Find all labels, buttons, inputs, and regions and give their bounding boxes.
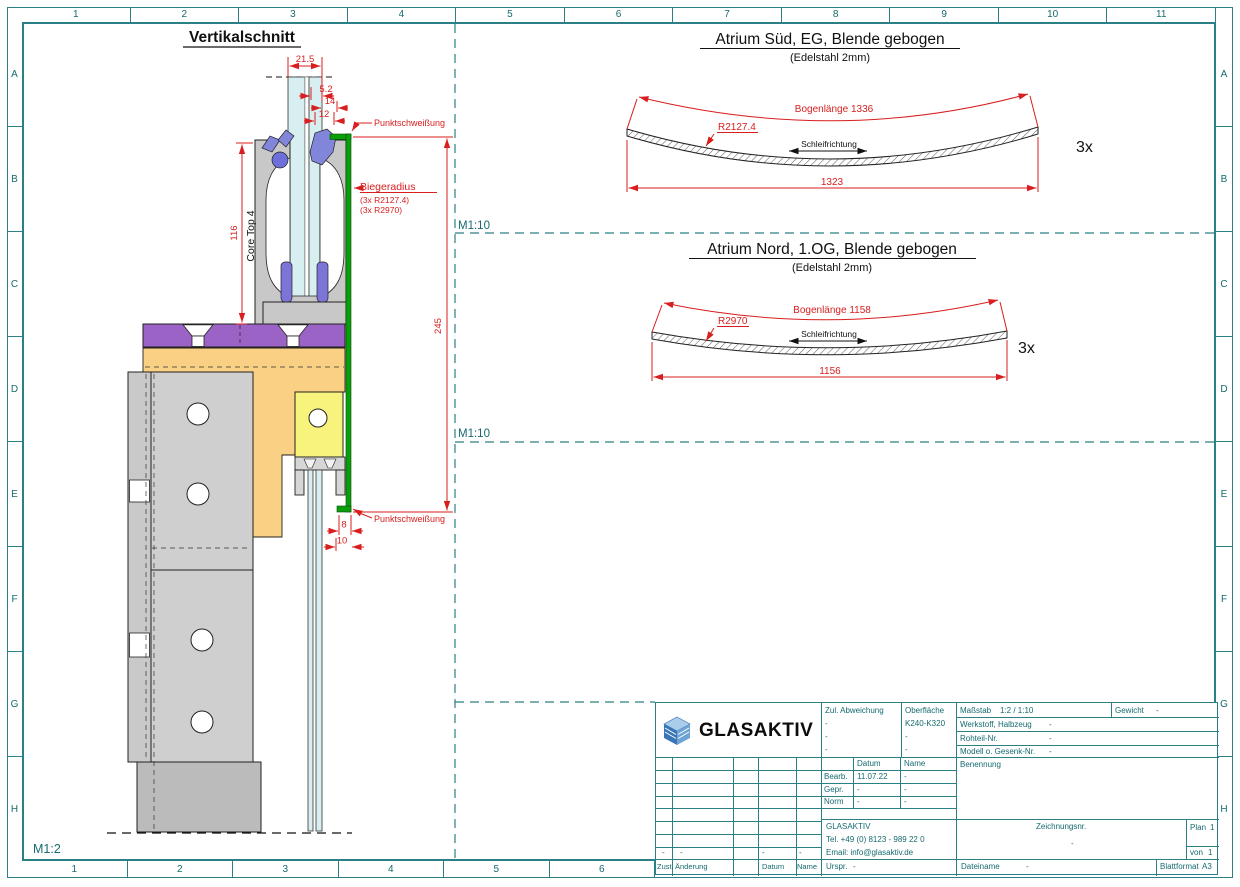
support-plates [128, 372, 261, 832]
tb-line [656, 796, 956, 797]
clamp-bottom-bridge [263, 302, 346, 324]
tb-line [656, 770, 956, 771]
tolerance-value: - [825, 719, 828, 729]
designation-label: Benennung [960, 760, 1001, 770]
surface-extra: - [905, 732, 908, 742]
tb-line [956, 703, 957, 876]
tolerance-label: Zul. Abweichung [825, 706, 884, 716]
tb-line [758, 757, 759, 876]
scale-label: Maßstab [960, 706, 991, 716]
drawing-no-value: - [1071, 839, 1074, 849]
company-logo: GLASAKTIV [662, 715, 813, 747]
tb-line [1186, 819, 1187, 859]
edge-plate-strip [128, 372, 151, 762]
tolerance-value: - [825, 732, 828, 742]
radius-nord: R2970 [718, 316, 748, 327]
shoe-leg [336, 470, 345, 495]
logo-text: GLASAKTIV [699, 720, 813, 742]
rev-dash: - [799, 848, 802, 858]
title-block: GLASAKTIV Zul. Abweichung - - - Oberfläc… [655, 702, 1218, 875]
tb-line [656, 757, 1219, 758]
gasket-lower-left [281, 262, 292, 302]
rev-dash: - [662, 848, 665, 858]
checked-name: - [904, 785, 907, 795]
rev-state-label: Zust. [657, 862, 674, 872]
tolerance-value: - [825, 745, 828, 755]
tb-line [672, 757, 673, 876]
surface-extra: - [905, 745, 908, 755]
dim-5-2: 5.2 [319, 84, 332, 95]
chord-sued: 1323 [821, 177, 844, 188]
tb-line [956, 717, 1219, 718]
surface-label: Oberfläche [905, 706, 944, 716]
rev-name-label: Name [797, 862, 817, 872]
bolt-hole [187, 403, 209, 425]
bolt-hole [187, 483, 209, 505]
tb-line [901, 703, 902, 757]
chord-nord: 1156 [819, 366, 841, 377]
vertical-section-drawing: Vertikalschnitt [107, 29, 453, 833]
scale-note-mid: M1:10 [458, 428, 490, 440]
bend-radius-title: Biegeradius [360, 181, 415, 193]
gasket-bead [272, 152, 288, 168]
scale-value: 1:2 / 1:10 [1000, 706, 1033, 716]
weld-label-bottom: Punktschweißung [374, 514, 445, 524]
tb-line [956, 731, 1219, 732]
strip-cutout [130, 633, 150, 657]
tb-line [656, 808, 956, 809]
radius-sued: R2127.4 [718, 122, 756, 133]
rev-change-label: Änderung [675, 862, 708, 872]
dim-12: 12 [319, 109, 330, 120]
date-col-header: Datum [857, 759, 881, 769]
glass-pane [308, 470, 313, 831]
norm-date: - [857, 797, 860, 807]
weld-label-top: Punktschweißung [374, 118, 445, 128]
model-label: Modell o. Gesenk-Nr. [960, 747, 1035, 757]
bolt-hole [191, 629, 213, 651]
profile-name-label: Core Top 4 [245, 210, 257, 261]
dim-116: 116 [229, 225, 240, 240]
glass-unit-lower [308, 470, 322, 831]
plan-label: Plan [1190, 823, 1206, 833]
scale-note-top: M1:10 [458, 220, 490, 232]
tb-line [900, 757, 901, 808]
rev-dash: - [762, 848, 765, 858]
origin-value: - [853, 862, 856, 872]
gasket-lower-right [317, 262, 328, 302]
tb-line [1111, 703, 1112, 717]
format-value: A3 [1202, 862, 1212, 872]
grind-direction-sued: Schleifrichtung [801, 139, 857, 149]
tb-line [821, 819, 1219, 820]
company-email: Email: info@glasaktiv.de [826, 848, 913, 858]
company-tel: Tel. +49 (0) 8123 - 989 22 0 [826, 835, 925, 845]
bolt-hole [191, 711, 213, 733]
model-value: - [1049, 747, 1052, 757]
tb-line [733, 757, 734, 876]
blende-sued-drawing: Atrium Süd, EG, Blende gebogen (Edelstah… [627, 31, 1093, 192]
name-col-header: Name [904, 759, 925, 769]
blank-no-label: Rohteil-Nr. [960, 734, 998, 744]
cover-strip-bottom-return [337, 506, 351, 512]
weight-label: Gewicht [1115, 706, 1144, 716]
origin-label: Urspr. [826, 862, 847, 872]
tb-line [956, 745, 1219, 746]
shoe-head [295, 457, 345, 470]
grind-direction-nord: Schleifrichtung [801, 329, 857, 339]
blende-sued-title: Atrium Süd, EG, Blende gebogen [715, 31, 944, 48]
dim-10: 10 [337, 536, 348, 547]
filename-value: - [1026, 862, 1029, 872]
tb-line [821, 703, 822, 876]
blende-nord-title: Atrium Nord, 1.OG, Blende gebogen [707, 241, 957, 258]
bracket-hole [309, 409, 327, 427]
dim-14: 14 [325, 96, 336, 107]
material-label: Werkstoff, Halbzeug [960, 720, 1032, 730]
tb-line [1186, 846, 1219, 847]
edited-date: 11.07.22 [857, 772, 888, 782]
blende-nord-subtitle: (Edelstahl 2mm) [792, 262, 872, 274]
bend-radius-line1: (3x R2127.4) [360, 195, 409, 205]
tb-line [796, 757, 797, 876]
strip-cutout [130, 480, 150, 502]
drawing-no-label: Zeichnungsnr. [1036, 822, 1086, 832]
material-value: - [1049, 720, 1052, 730]
bend-radius-line2: (3x R2970) [360, 205, 402, 215]
norm-name: - [904, 797, 907, 807]
section-title: Vertikalschnitt [189, 29, 295, 46]
blende-nord-drawing: Atrium Nord, 1.OG, Blende gebogen (Edels… [652, 241, 1035, 381]
format-label: Blattformat [1160, 862, 1199, 872]
edited-name: - [904, 772, 907, 782]
of-value: 1 [1208, 848, 1212, 858]
tb-line [656, 783, 956, 784]
rev-date-label: Datum [762, 862, 784, 872]
blende-sued-subtitle: (Edelstahl 2mm) [790, 52, 870, 64]
checked-date: - [857, 785, 860, 795]
quantity-sued: 3x [1076, 139, 1093, 156]
surface-value: K240-K320 [905, 719, 945, 729]
of-label: von [1190, 848, 1203, 858]
blank-no-value: - [1049, 734, 1052, 744]
checked-label: Gepr. [824, 785, 844, 795]
dim-glass-width: 21.5 [296, 54, 315, 65]
tb-line [853, 757, 854, 808]
rev-dash: - [680, 848, 683, 858]
arc-length-sued: Bogenlänge 1336 [795, 104, 874, 115]
dim-8: 8 [341, 520, 346, 531]
glass-pane [316, 470, 322, 831]
support-post [137, 762, 261, 832]
shoe-leg [295, 470, 304, 495]
tb-line [1156, 859, 1157, 876]
quantity-nord: 3x [1018, 340, 1035, 357]
cover-strip-face [346, 134, 351, 512]
arc-length-nord: Bogenlänge 1158 [793, 305, 871, 316]
glass-interlayer [305, 77, 309, 310]
edited-label: Bearb. [824, 772, 848, 782]
weight-value: - [1156, 706, 1159, 716]
scale-note-left: M1:2 [33, 842, 61, 856]
logo-cube-icon [662, 715, 692, 747]
purple-clamp-bar [143, 324, 345, 347]
plan-value: 1 [1210, 823, 1214, 833]
company-name: GLASAKTIV [826, 822, 870, 832]
tb-line [656, 859, 1219, 860]
filename-label: Dateiname [961, 862, 1000, 872]
dim-245: 245 [433, 318, 444, 334]
support-plate-upper [150, 372, 253, 570]
norm-label: Norm [824, 797, 844, 807]
